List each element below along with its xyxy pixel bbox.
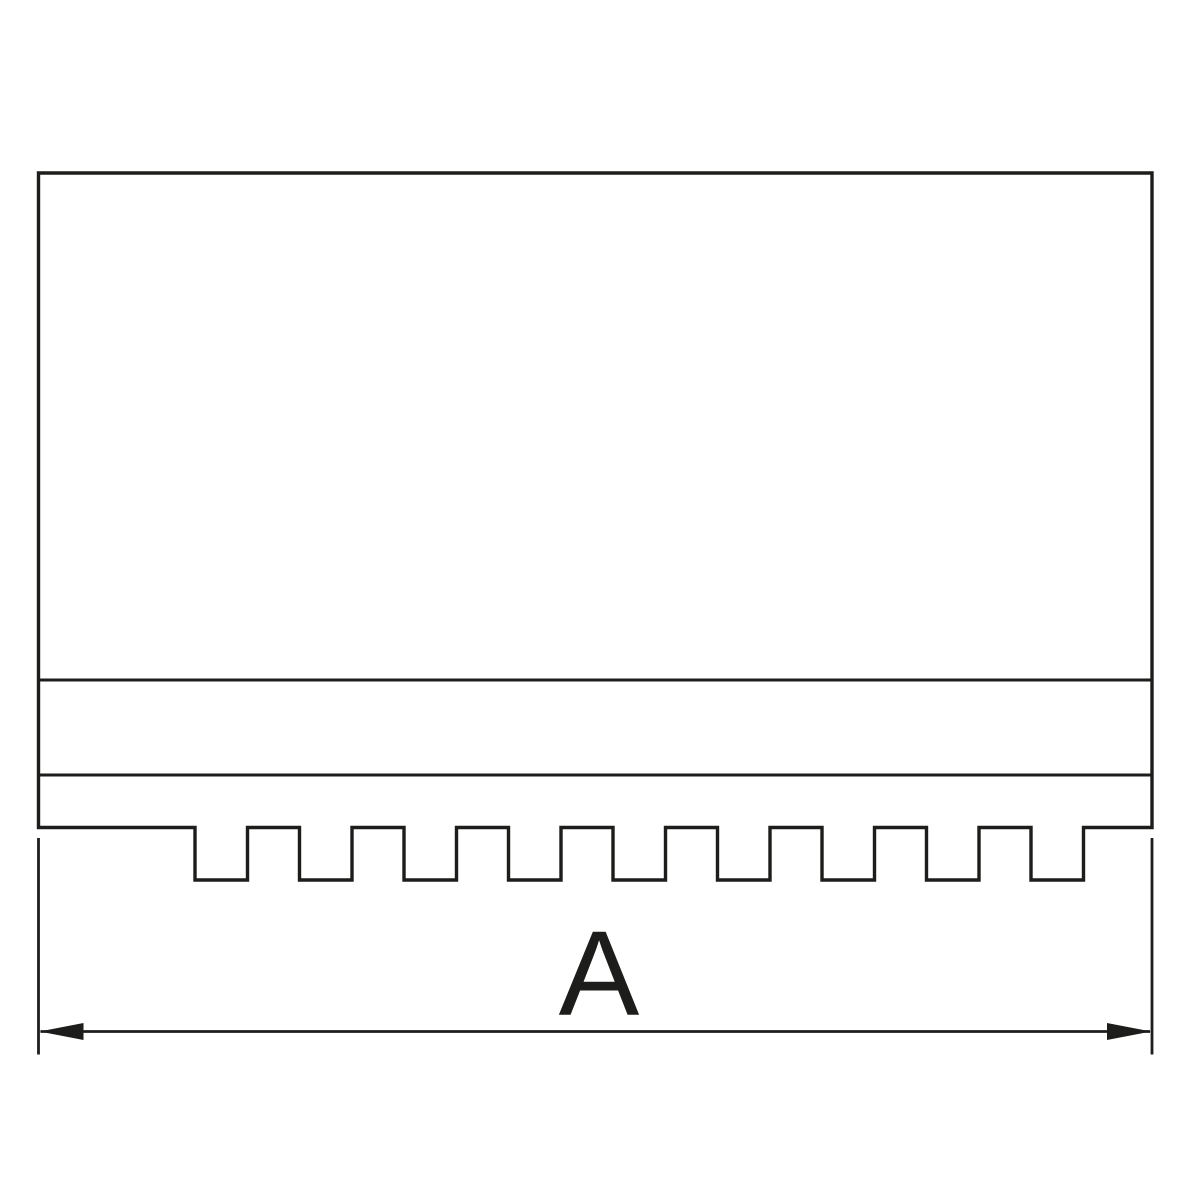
dimension-arrow-left-icon [40,1023,84,1040]
dimension-layer: A [39,838,1153,1055]
technical-drawing-canvas: A [0,0,1200,1200]
technical-drawing-page: A [0,0,1200,1200]
dimension-label: A [559,905,640,1041]
drawing-layer [39,173,1153,880]
dimension-arrow-right-icon [1107,1023,1151,1040]
